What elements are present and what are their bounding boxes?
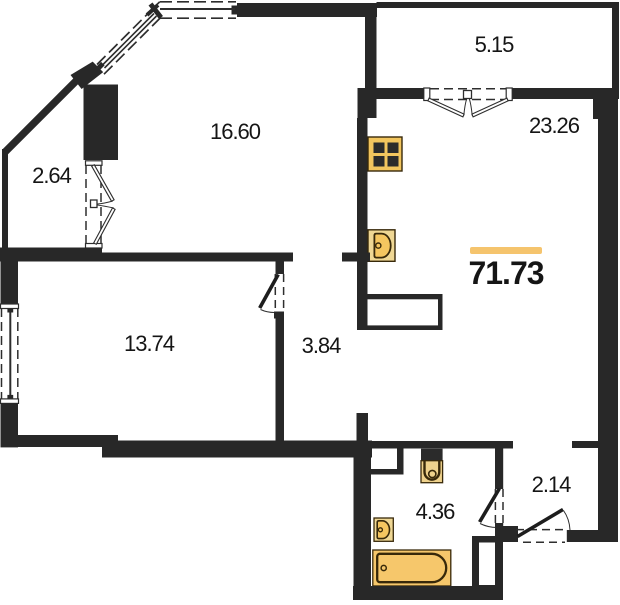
svg-text:2.64: 2.64 — [32, 163, 72, 188]
svg-text:23.26: 23.26 — [529, 113, 580, 138]
svg-text:2.14: 2.14 — [532, 472, 572, 497]
svg-text:4.36: 4.36 — [416, 499, 456, 524]
svg-text:3.84: 3.84 — [302, 333, 342, 358]
svg-text:71.73: 71.73 — [468, 255, 543, 291]
svg-text:13.74: 13.74 — [124, 331, 175, 356]
svg-text:5.15: 5.15 — [475, 32, 515, 57]
svg-text:16.60: 16.60 — [210, 119, 261, 144]
